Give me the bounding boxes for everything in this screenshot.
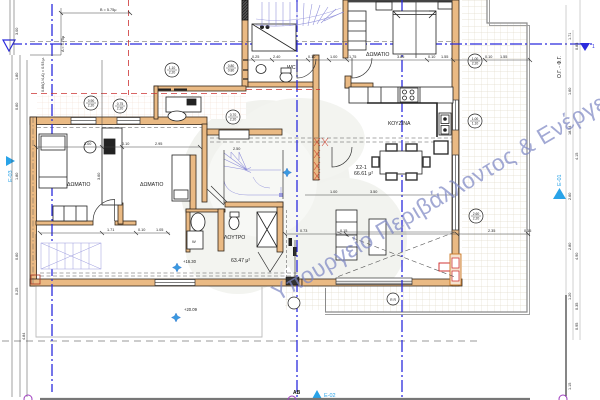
svg-text:0.60: 0.60 — [15, 253, 19, 260]
svg-text:0.70: 0.70 — [230, 113, 237, 117]
svg-text:+16.30: +16.30 — [183, 259, 197, 264]
svg-text:2.40: 2.40 — [273, 55, 280, 59]
svg-text:0.25: 0.25 — [252, 55, 259, 59]
svg-text:0.95: 0.95 — [575, 323, 579, 330]
svg-text:Ε-03: Ε-03 — [8, 170, 14, 182]
svg-text:1: 1 — [592, 44, 595, 50]
svg-text:2.50: 2.50 — [233, 147, 240, 151]
svg-text:3.85: 3.85 — [397, 55, 404, 59]
svg-text:ΑΒ: ΑΒ — [293, 390, 301, 396]
svg-text:W: W — [192, 239, 196, 244]
svg-text:0.15: 0.15 — [340, 229, 347, 233]
svg-text:Β = 5.75μ: Β = 5.75μ — [100, 8, 116, 12]
svg-text:1.71: 1.71 — [107, 228, 114, 232]
svg-text:ΚΟΥΖΙΝΑ: ΚΟΥΖΙΝΑ — [388, 121, 411, 127]
svg-text:1.80: 1.80 — [15, 173, 19, 180]
svg-text:0.80: 0.80 — [228, 64, 235, 68]
svg-text:Α = 5.75μ: Α = 5.75μ — [61, 36, 65, 52]
svg-text:ΛΟΥΤΡΟ: ΛΟΥΤΡΟ — [224, 235, 245, 241]
svg-text:4.15: 4.15 — [575, 153, 579, 160]
svg-text:0.10: 0.10 — [122, 142, 129, 146]
svg-text:3.00: 3.00 — [84, 142, 91, 146]
svg-text:2.20: 2.20 — [472, 62, 479, 66]
svg-text:3.60: 3.60 — [97, 173, 101, 180]
svg-text:2.60: 2.60 — [473, 212, 480, 216]
svg-text:66.61 μ²: 66.61 μ² — [354, 171, 373, 177]
svg-text:4.90: 4.90 — [575, 253, 579, 260]
svg-text:R R: R R — [390, 298, 396, 302]
svg-text:0.86(1/4,Δ) = 0.93 μ.: 0.86(1/4,Δ) = 0.93 μ. — [41, 57, 45, 92]
svg-text:0.75: 0.75 — [117, 102, 124, 106]
svg-text:1.75: 1.75 — [349, 55, 356, 59]
svg-text:2.95: 2.95 — [155, 142, 162, 146]
svg-text:1.60: 1.60 — [568, 88, 572, 95]
svg-text:0.10: 0.10 — [308, 55, 315, 59]
svg-text:2.35: 2.35 — [488, 229, 495, 233]
svg-text:0.35: 0.35 — [575, 303, 579, 310]
svg-text:ΔΩΜΑΤΙΟ: ΔΩΜΑΤΙΟ — [366, 52, 389, 58]
svg-text:1.00: 1.00 — [330, 190, 337, 194]
svg-text:Ε-01: Ε-01 — [557, 174, 563, 186]
svg-text:0.10: 0.10 — [485, 55, 492, 59]
svg-text:2.20: 2.20 — [117, 107, 124, 111]
svg-text:3.50: 3.50 — [370, 190, 377, 194]
svg-text:63.47 μ²: 63.47 μ² — [231, 258, 250, 264]
svg-text:2.20: 2.20 — [230, 118, 237, 122]
svg-text:Ο.Γ. - Φ.Γ.: Ο.Γ. - Φ.Γ. — [557, 56, 563, 78]
svg-text:1.00: 1.00 — [472, 117, 479, 121]
svg-text:0.90: 0.90 — [88, 99, 95, 103]
svg-text:1.05: 1.05 — [156, 228, 163, 232]
svg-text:ΔΩΜΑΤΙΟ: ΔΩΜΑΤΙΟ — [140, 182, 163, 188]
svg-text:1.55: 1.55 — [441, 55, 448, 59]
svg-text:ΔΩΜΑΤΙΟ: ΔΩΜΑΤΙΟ — [67, 182, 90, 188]
svg-text:1.00: 1.00 — [472, 57, 479, 61]
svg-text:2.60: 2.60 — [568, 193, 572, 200]
svg-text:0.10: 0.10 — [428, 55, 435, 59]
svg-text:2.20: 2.20 — [473, 217, 480, 221]
svg-text:1.55: 1.55 — [500, 55, 507, 59]
svg-text:1.20: 1.20 — [568, 293, 572, 300]
svg-text:1.00: 1.00 — [330, 55, 337, 59]
svg-text:1.71: 1.71 — [568, 33, 572, 40]
svg-text:1.10: 1.10 — [472, 122, 479, 126]
svg-text:0.73: 0.73 — [300, 229, 307, 233]
svg-text:0.25: 0.25 — [15, 288, 19, 295]
svg-text:3.00: 3.00 — [15, 28, 19, 35]
svg-text:0.85: 0.85 — [575, 43, 579, 50]
svg-text:0.80: 0.80 — [228, 69, 235, 73]
svg-text:2.80: 2.80 — [568, 243, 572, 250]
svg-text:0.10: 0.10 — [138, 228, 145, 232]
svg-text:4.84: 4.84 — [22, 333, 26, 340]
svg-text:1.10: 1.10 — [169, 66, 176, 70]
svg-text:2.20: 2.20 — [88, 104, 95, 108]
svg-text:1.15: 1.15 — [568, 383, 572, 390]
svg-text:1.80: 1.80 — [15, 73, 19, 80]
svg-text:0.15: 0.15 — [524, 229, 531, 233]
svg-text:2.20: 2.20 — [169, 71, 176, 75]
svg-text:+20.09: +20.09 — [184, 307, 198, 312]
svg-text:0.60: 0.60 — [15, 103, 19, 110]
